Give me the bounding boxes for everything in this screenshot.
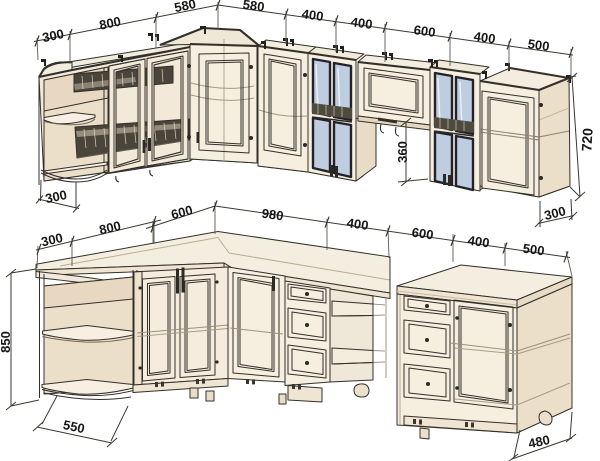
svg-text:400: 400 [301, 6, 325, 24]
svg-text:980: 980 [261, 206, 285, 224]
svg-text:500: 500 [527, 36, 551, 54]
svg-text:360: 360 [395, 141, 410, 163]
svg-text:600: 600 [413, 22, 437, 40]
svg-text:400: 400 [467, 233, 491, 251]
svg-text:720: 720 [578, 127, 595, 151]
svg-text:600: 600 [411, 225, 435, 243]
svg-text:400: 400 [346, 215, 370, 233]
svg-text:500: 500 [522, 241, 546, 259]
svg-text:400: 400 [350, 14, 374, 32]
svg-text:850: 850 [0, 331, 13, 353]
svg-text:400: 400 [473, 29, 497, 47]
